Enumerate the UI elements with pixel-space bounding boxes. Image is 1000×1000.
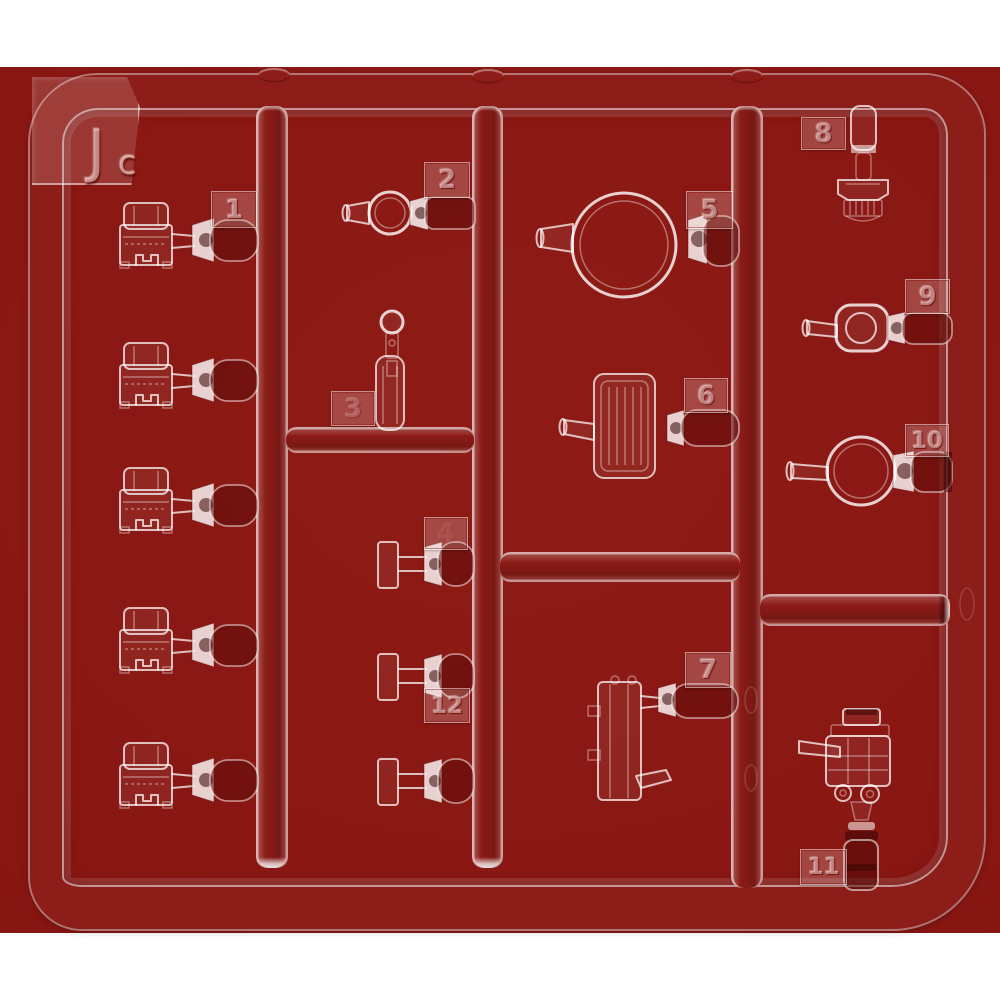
runner-vertical-1 — [256, 106, 288, 868]
part-tag-7-number: 7 — [699, 655, 717, 685]
part-tag-8-number: 8 — [814, 119, 832, 149]
part-tag-3: 3 — [331, 391, 375, 426]
part-tag-10: 10 — [905, 424, 949, 457]
runner-vertical-2 — [472, 106, 503, 868]
frame-bump-3 — [731, 69, 763, 82]
sprue-frame — [30, 75, 984, 929]
part-tag-4-number: 4 — [437, 519, 455, 549]
part-tag-3-number: 3 — [344, 394, 362, 424]
part-tag-12: 12 — [424, 688, 470, 723]
part-tag-6-number: 6 — [697, 381, 715, 411]
sprue-letter: J — [88, 122, 105, 180]
runner-horizontal-middle — [500, 552, 740, 582]
part-tag-6: 6 — [684, 378, 728, 413]
part-tag-2: 2 — [424, 162, 470, 198]
part-tag-2-number: 2 — [438, 165, 456, 195]
part-tag-5: 5 — [686, 191, 733, 229]
frame-bump-2 — [472, 69, 504, 82]
part-tag-9: 9 — [905, 279, 950, 314]
part-tag-12-number: 12 — [431, 693, 463, 719]
part-tag-11-number: 11 — [807, 854, 839, 880]
sprue-letter-sub: c — [118, 146, 137, 180]
part-tag-7: 7 — [685, 652, 731, 688]
part-tag-8: 8 — [801, 117, 846, 150]
runner-horizontal-right — [760, 594, 950, 626]
part-tag-11: 11 — [800, 849, 847, 885]
runner-horizontal-left — [286, 427, 474, 453]
part-tag-1-number: 1 — [225, 195, 243, 225]
part-tag-1: 1 — [211, 191, 257, 228]
part-tag-9-number: 9 — [918, 282, 936, 312]
part-tag-5-number: 5 — [700, 195, 718, 225]
runner-vertical-3 — [731, 106, 763, 888]
photo-page: J c — [0, 0, 1000, 1000]
frame-bump-1 — [258, 68, 290, 81]
part-tag-10-number: 10 — [911, 428, 943, 454]
part-tag-4: 4 — [424, 517, 468, 550]
